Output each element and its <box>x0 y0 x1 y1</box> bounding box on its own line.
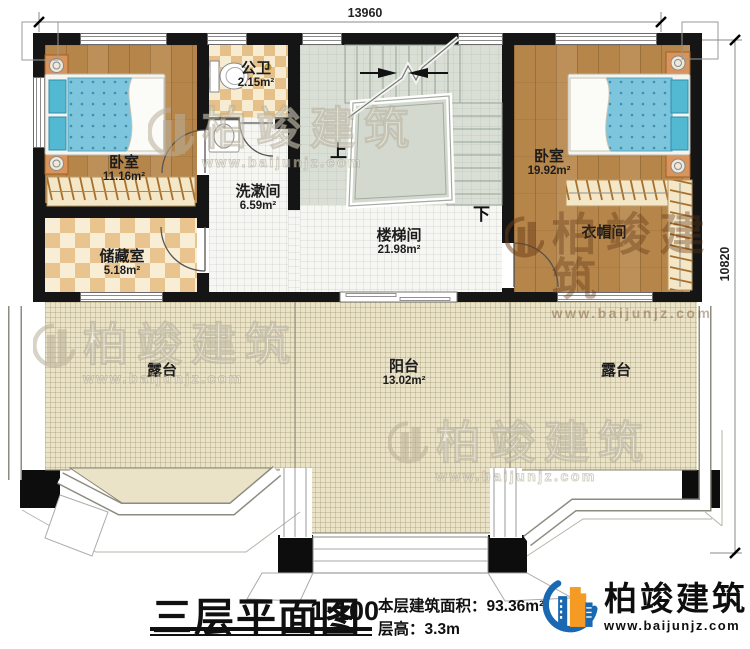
room-label-terrace-left: 露台 <box>147 362 177 379</box>
wall <box>197 273 209 302</box>
dimension-top: 13960 <box>348 6 383 20</box>
room-label-cloakroom: 衣帽间 <box>581 224 626 241</box>
floor-height-label: 层高： <box>378 621 425 638</box>
plan-scale: 1:100 <box>310 596 379 627</box>
window <box>458 33 503 45</box>
company-logo-icon <box>540 578 598 636</box>
floor-terrace-left <box>45 302 295 470</box>
wall <box>288 45 300 210</box>
floor-stairwell <box>300 45 502 205</box>
window <box>557 292 653 302</box>
company-url: www.baijunjz.com <box>604 618 748 633</box>
room-label-bedroom-2: 卧室 19.92m² <box>528 148 571 178</box>
room-label-bedroom-1: 卧室 11.16m² <box>103 154 145 184</box>
room-label-terrace-right: 露台 <box>601 362 631 379</box>
floor-height-note: 层高：3.3m <box>378 617 460 639</box>
company-logo: 柏竣建筑 www.baijunjz.com <box>540 578 748 636</box>
title-underline-2 <box>150 634 372 636</box>
area-note-value: 93.36m² <box>487 598 545 615</box>
window <box>33 77 45 148</box>
pillar <box>20 470 60 508</box>
wall <box>275 117 288 129</box>
wall <box>197 175 209 228</box>
wall <box>209 117 240 129</box>
wall <box>197 45 209 130</box>
room-label-storage: 储藏室 5.18m² <box>99 248 144 278</box>
pillar <box>682 470 720 508</box>
room-label-stairwell: 楼梯间 21.98m² <box>376 227 421 257</box>
window <box>555 33 657 45</box>
wall <box>502 288 514 302</box>
floor-passage <box>288 210 300 292</box>
company-name: 柏竣建筑 <box>604 582 748 615</box>
window <box>80 292 163 302</box>
stair-down-label: 下 <box>473 200 490 225</box>
window <box>302 33 342 45</box>
wall <box>45 203 209 218</box>
area-note: 本层建筑面积：93.36m² <box>378 594 544 616</box>
stair-up-label: 上 <box>330 137 347 162</box>
terrace-bay <box>70 468 272 505</box>
room-label-bathroom: 公卫 2.15m² <box>238 60 274 90</box>
title-underline <box>150 627 372 631</box>
wall <box>502 45 514 243</box>
room-label-balcony: 阳台 13.02m² <box>383 358 426 388</box>
floor-plan-canvas: 卧室 11.16m² 公卫 2.15m² 洗漱间 6.59m² 楼梯间 21.9… <box>0 0 750 649</box>
floor-terrace-right <box>510 302 697 470</box>
room-label-washroom: 洗漱间 6.59m² <box>235 183 280 213</box>
area-note-label: 本层建筑面积： <box>378 598 487 615</box>
floor-height-value: 3.3m <box>425 621 460 638</box>
window <box>80 33 167 45</box>
floor-balcony <box>295 302 510 533</box>
pillar <box>488 535 527 573</box>
dimension-right: 10820 <box>718 234 732 294</box>
pillar <box>278 535 313 573</box>
window <box>207 33 247 45</box>
wall <box>690 45 702 302</box>
